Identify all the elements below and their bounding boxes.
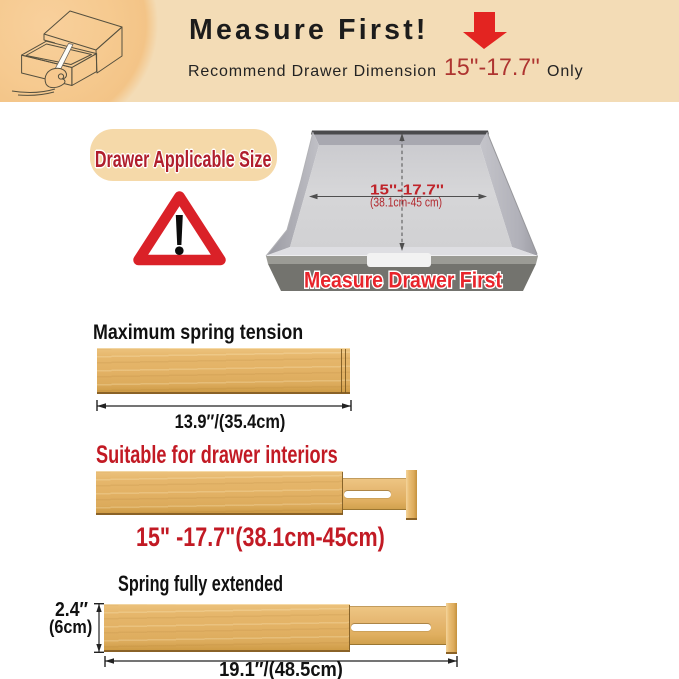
svg-text:Measure Drawer First: Measure Drawer First xyxy=(304,268,502,293)
svg-text:(38.1cm-45 cm): (38.1cm-45 cm) xyxy=(370,196,442,210)
